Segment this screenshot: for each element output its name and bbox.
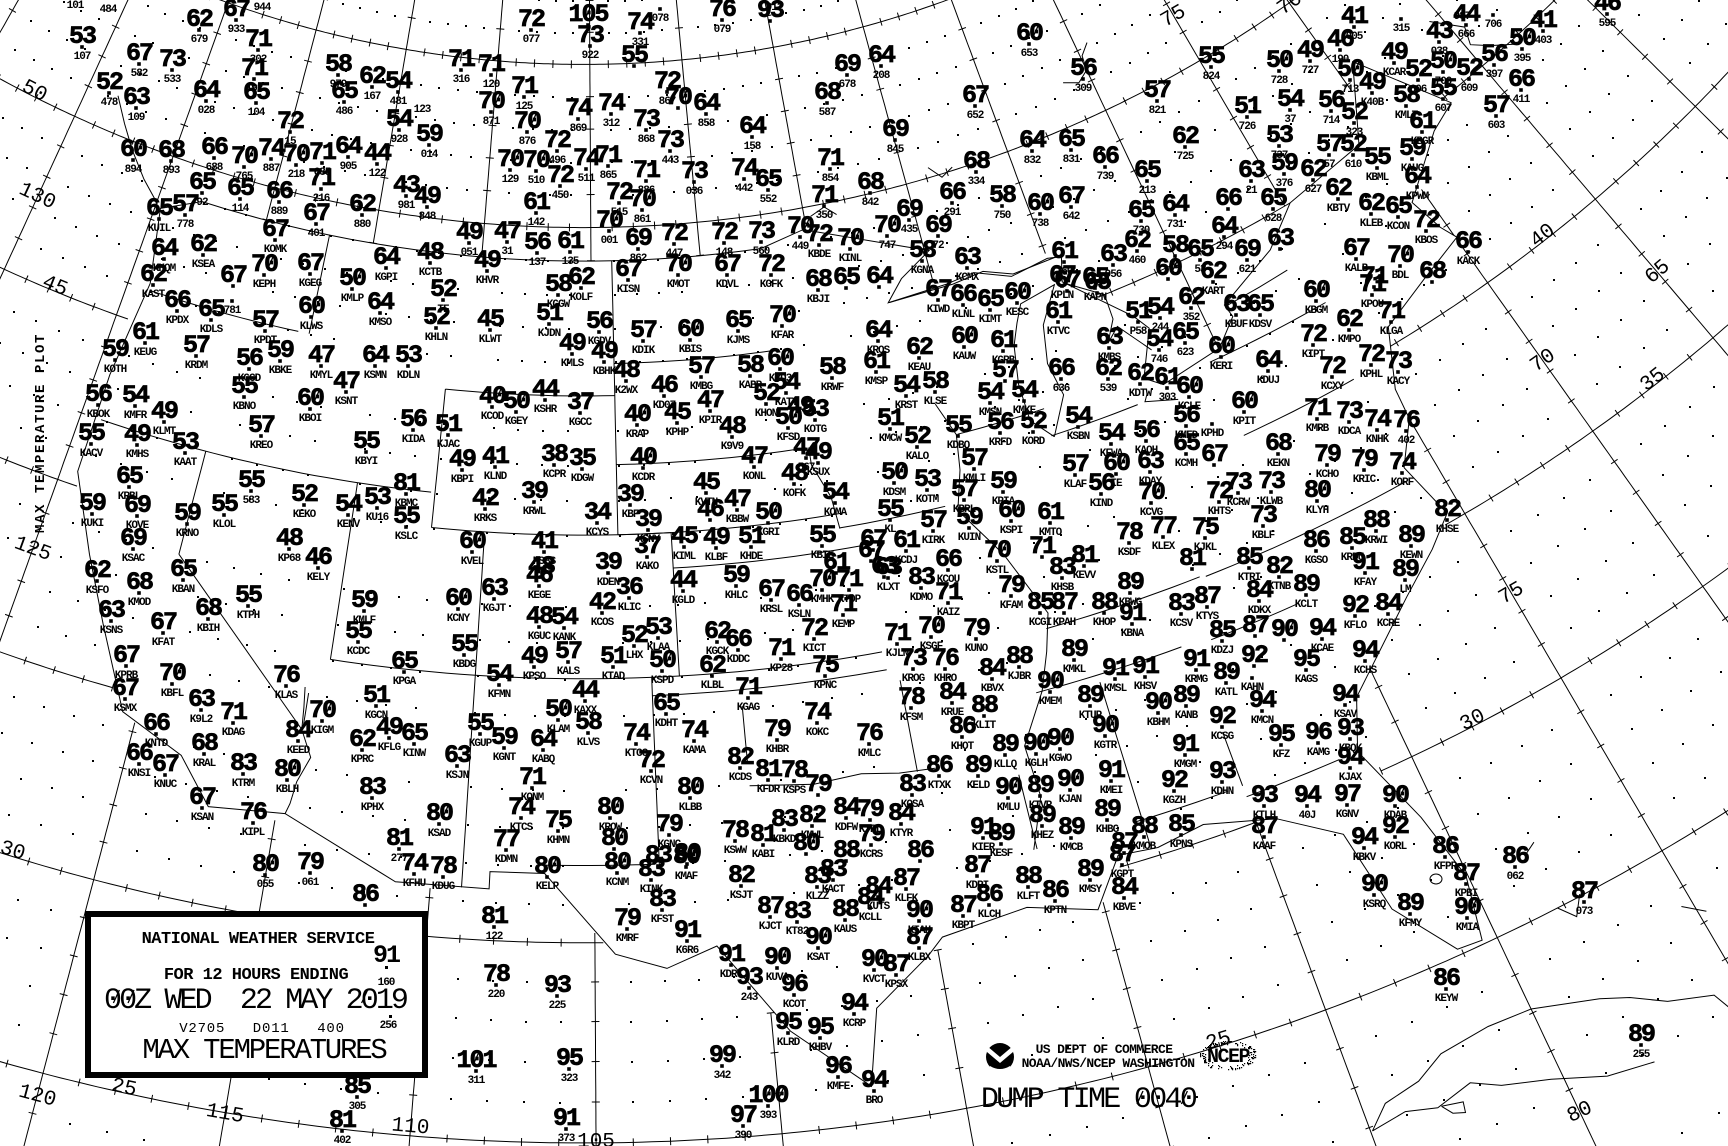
svg-text:70: 70: [251, 250, 278, 279]
svg-text:KMCB: KMCB: [1060, 842, 1084, 854]
svg-text:46: 46: [526, 561, 553, 590]
svg-text:KORF: KORF: [1391, 477, 1414, 489]
svg-text:79: 79: [764, 715, 791, 744]
svg-text:KSWW: KSWW: [724, 845, 748, 857]
svg-text:636: 636: [1053, 383, 1070, 395]
svg-text:411: 411: [1513, 94, 1531, 106]
svg-text:256: 256: [380, 1020, 397, 1032]
svg-text:KSHR: KSHR: [534, 404, 558, 416]
svg-text:842: 842: [862, 197, 879, 209]
svg-text:KPNC: KPNC: [814, 680, 838, 692]
svg-text:58: 58: [1393, 81, 1420, 110]
svg-text:BDL: BDL: [1392, 270, 1410, 282]
svg-text:67: 67: [303, 199, 330, 228]
svg-text:91: 91: [1102, 654, 1129, 683]
svg-text:61: 61: [523, 188, 550, 217]
svg-text:KBFL: KBFL: [161, 688, 185, 700]
svg-text:56: 56: [987, 408, 1014, 437]
svg-text:58: 58: [909, 236, 936, 265]
svg-text:89: 89: [1628, 1020, 1655, 1049]
svg-text:94: 94: [1351, 823, 1379, 852]
svg-text:KOLF: KOLF: [570, 292, 593, 304]
svg-text:KJBR: KJBR: [1008, 671, 1032, 683]
svg-text:94: 94: [861, 1066, 889, 1095]
svg-text:72: 72: [806, 220, 833, 249]
svg-text:928: 928: [391, 134, 409, 146]
svg-text:66: 66: [950, 280, 977, 309]
svg-text:105: 105: [577, 1131, 615, 1146]
svg-text:KBGM: KBGM: [1305, 305, 1329, 317]
svg-text:64: 64: [373, 243, 401, 272]
svg-text:79: 79: [297, 848, 324, 877]
svg-text:KBKV: KBKV: [1353, 852, 1377, 864]
svg-text:KLYH: KLYH: [1306, 505, 1329, 517]
svg-text:KOMA: KOMA: [824, 507, 848, 519]
svg-text:51: 51: [600, 642, 627, 671]
svg-text:47: 47: [308, 341, 335, 370]
svg-text:KEVV: KEVV: [1073, 570, 1097, 582]
svg-text:KHRO: KHRO: [934, 673, 958, 685]
svg-text:89: 89: [965, 751, 992, 780]
svg-text:KLXT: KLXT: [877, 582, 901, 594]
svg-text:71: 71: [519, 763, 546, 792]
svg-text:48: 48: [526, 602, 553, 631]
svg-text:KFST: KFST: [651, 914, 675, 926]
svg-text:KMOD: KMOD: [128, 597, 152, 609]
svg-text:89: 89: [992, 730, 1019, 759]
svg-text:KTLH: KTLH: [1253, 810, 1276, 822]
svg-text:53: 53: [802, 395, 829, 424]
svg-text:79: 79: [805, 770, 832, 799]
svg-text:67: 67: [152, 750, 179, 779]
svg-text:67: 67: [1343, 234, 1370, 263]
svg-text:54: 54: [486, 660, 514, 689]
svg-text:933: 933: [228, 24, 246, 36]
svg-text:KENV: KENV: [337, 519, 361, 531]
svg-text:62: 62: [1325, 174, 1352, 203]
svg-text:KCGI: KCGI: [1029, 617, 1052, 629]
svg-text:KGLH: KGLH: [1025, 758, 1048, 770]
svg-text:277: 277: [391, 853, 408, 865]
svg-text:65: 65: [391, 647, 418, 676]
svg-text:71: 71: [309, 138, 336, 167]
svg-text:KIPL: KIPL: [242, 827, 266, 839]
svg-text:52: 52: [1340, 130, 1367, 159]
svg-text:65: 65: [1260, 184, 1287, 213]
svg-text:92: 92: [1342, 591, 1369, 620]
svg-text:653: 653: [1021, 48, 1039, 60]
svg-text:50: 50: [1509, 24, 1536, 53]
svg-text:73: 73: [748, 217, 775, 246]
svg-text:587: 587: [819, 107, 836, 119]
svg-text:59: 59: [990, 467, 1017, 496]
svg-text:KORL: KORL: [1384, 841, 1408, 853]
svg-text:KLWT: KLWT: [479, 334, 503, 346]
svg-text:91: 91: [1098, 756, 1125, 785]
svg-text:55: 55: [345, 617, 372, 646]
svg-text:KTVC: KTVC: [1047, 326, 1071, 338]
svg-text:KMEM: KMEM: [1039, 696, 1063, 708]
svg-text:NATIONAL WEATHER SERVICE: NATIONAL WEATHER SERVICE: [142, 930, 375, 949]
svg-text:57: 57: [1062, 450, 1089, 479]
svg-text:607: 607: [1435, 103, 1452, 115]
svg-text:KTYS: KTYS: [1196, 611, 1220, 623]
svg-text:77: 77: [1150, 512, 1177, 541]
svg-text:KISN: KISN: [617, 284, 640, 296]
svg-text:014: 014: [421, 149, 439, 161]
svg-text:89: 89: [1029, 801, 1056, 830]
svg-text:KSRQ: KSRQ: [1363, 899, 1387, 911]
svg-text:KAAF: KAAF: [1253, 841, 1276, 853]
svg-text:67: 67: [1201, 440, 1228, 469]
svg-text:86: 86: [949, 712, 976, 741]
svg-text:80: 80: [604, 848, 631, 877]
svg-text:50: 50: [1266, 46, 1293, 75]
svg-text:746: 746: [1151, 354, 1168, 366]
svg-text:68: 68: [158, 136, 185, 165]
svg-text:60: 60: [445, 584, 472, 613]
svg-text:KGNT: KGNT: [493, 752, 517, 764]
svg-text:94: 94: [1294, 781, 1322, 810]
svg-text:48: 48: [417, 238, 444, 267]
svg-text:59: 59: [723, 561, 750, 590]
svg-text:028: 028: [198, 105, 216, 117]
svg-text:73: 73: [1336, 397, 1363, 426]
svg-text:96: 96: [825, 1052, 852, 1081]
svg-text:50: 50: [1430, 47, 1457, 76]
svg-text:42: 42: [589, 588, 616, 617]
svg-text:70: 70: [497, 145, 524, 174]
svg-text:KTRM: KTRM: [232, 778, 256, 790]
svg-text:82: 82: [1266, 552, 1293, 581]
svg-text:KCNM: KCNM: [606, 877, 630, 889]
svg-text:MAX TEMPERATURE PLOT: MAX TEMPERATURE PLOT: [33, 333, 49, 533]
svg-text:54: 54: [893, 371, 921, 400]
svg-text:78: 78: [781, 756, 808, 785]
svg-text:84: 84: [285, 716, 313, 745]
svg-text:373: 373: [558, 1133, 576, 1145]
svg-text:66: 66: [939, 178, 966, 207]
svg-text:315: 315: [1393, 23, 1411, 35]
svg-text:725: 725: [1177, 151, 1195, 163]
svg-text:KPSX: KPSX: [885, 979, 909, 991]
svg-text:220: 220: [488, 989, 505, 1001]
svg-text:72: 72: [758, 250, 785, 279]
svg-text:KPGA: KPGA: [393, 676, 417, 688]
svg-text:871: 871: [483, 116, 501, 128]
svg-text:61: 61: [1037, 498, 1064, 527]
svg-text:KBJI: KBJI: [807, 294, 830, 306]
svg-text:87: 87: [1453, 859, 1480, 888]
svg-text:87: 87: [1051, 588, 1078, 617]
svg-text:62: 62: [349, 190, 376, 219]
svg-text:49: 49: [376, 713, 403, 742]
svg-text:73: 73: [1250, 501, 1277, 530]
svg-text:51: 51: [1234, 92, 1261, 121]
svg-text:309: 309: [1075, 83, 1092, 95]
svg-text:63: 63: [444, 741, 471, 770]
svg-text:KANB: KANB: [1175, 710, 1199, 722]
svg-text:81: 81: [1071, 541, 1098, 570]
svg-text:KELD: KELD: [967, 780, 991, 792]
svg-text:747: 747: [879, 240, 896, 252]
svg-text:83: 83: [649, 885, 676, 914]
svg-text:71: 71: [768, 634, 795, 663]
svg-text:69: 69: [120, 524, 147, 553]
svg-text:82: 82: [728, 861, 755, 890]
svg-text:73: 73: [159, 45, 186, 74]
svg-text:63: 63: [871, 552, 898, 581]
svg-text:79: 79: [1351, 445, 1378, 474]
svg-text:89: 89: [1173, 681, 1200, 710]
svg-text:74: 74: [681, 716, 709, 745]
svg-text:60: 60: [951, 322, 978, 351]
svg-text:160: 160: [378, 977, 395, 989]
svg-text:72: 72: [801, 614, 828, 643]
svg-text:67: 67: [1058, 182, 1085, 211]
svg-text:66: 66: [725, 625, 752, 654]
svg-text:552: 552: [760, 194, 777, 206]
svg-text:87: 87: [1194, 582, 1221, 611]
svg-text:88: 88: [1006, 642, 1033, 671]
svg-text:91: 91: [1183, 645, 1210, 674]
svg-text:887: 887: [263, 163, 280, 175]
svg-text:101: 101: [67, 0, 85, 12]
svg-text:67: 67: [615, 255, 642, 284]
svg-text:57: 57: [630, 316, 657, 345]
svg-text:78: 78: [483, 960, 510, 989]
svg-text:59: 59: [79, 489, 106, 518]
svg-text:60: 60: [1155, 254, 1182, 283]
svg-text:90: 90: [1023, 729, 1050, 758]
svg-text:893: 893: [163, 165, 181, 177]
svg-text:68: 68: [126, 568, 153, 597]
svg-text:831: 831: [1063, 154, 1081, 166]
svg-text:KAGS: KAGS: [1295, 674, 1319, 686]
svg-text:76: 76: [856, 719, 883, 748]
svg-text:86: 86: [1433, 964, 1460, 993]
svg-text:KSPS: KSPS: [783, 785, 807, 797]
svg-text:KLIC: KLIC: [618, 602, 642, 614]
svg-text:54: 54: [1147, 293, 1175, 322]
svg-text:KFMN: KFMN: [488, 689, 511, 701]
svg-text:64: 64: [367, 288, 395, 317]
svg-text:87: 87: [893, 864, 920, 893]
svg-text:073: 073: [1576, 906, 1594, 918]
svg-text:90: 90: [764, 943, 791, 972]
svg-text:55: 55: [231, 372, 258, 401]
svg-text:83: 83: [784, 897, 811, 926]
svg-text:KBKD: KBKD: [773, 834, 797, 846]
svg-text:57: 57: [172, 190, 199, 219]
svg-text:62: 62: [190, 230, 217, 259]
svg-text:KDHN: KDHN: [1211, 786, 1234, 798]
svg-text:84: 84: [857, 883, 885, 912]
svg-text:KRIC: KRIC: [1353, 474, 1377, 486]
svg-text:533: 533: [164, 74, 182, 86]
svg-text:78: 78: [430, 852, 457, 881]
svg-text:53: 53: [914, 465, 941, 494]
svg-text:KGTR: KGTR: [1094, 740, 1118, 752]
svg-text:54: 54: [1146, 325, 1174, 354]
svg-text:81: 81: [481, 902, 508, 931]
svg-text:49: 49: [474, 246, 501, 275]
svg-text:62: 62: [906, 333, 933, 362]
svg-text:KORD: KORD: [1022, 436, 1046, 448]
svg-text:55: 55: [78, 419, 105, 448]
svg-text:KBOI: KBOI: [299, 413, 322, 425]
svg-text:KEMP: KEMP: [832, 619, 856, 631]
svg-text:KBAN: KBAN: [172, 584, 195, 596]
svg-text:59: 59: [416, 120, 443, 149]
svg-text:57: 57: [248, 411, 275, 440]
svg-text:KMSP: KMSP: [865, 376, 889, 388]
svg-text:KSAN: KSAN: [191, 812, 214, 824]
svg-text:93: 93: [1251, 781, 1278, 810]
svg-text:KESF: KESF: [990, 848, 1013, 860]
svg-text:50: 50: [503, 387, 530, 416]
svg-text:62: 62: [1178, 283, 1205, 312]
svg-text:64: 64: [865, 316, 893, 345]
svg-text:KVEL: KVEL: [461, 556, 485, 568]
svg-text:KNUC: KNUC: [154, 779, 178, 791]
svg-text:53: 53: [1266, 121, 1293, 150]
svg-text:83: 83: [1049, 553, 1076, 582]
svg-text:58: 58: [545, 270, 572, 299]
svg-text:051: 051: [461, 247, 479, 259]
svg-text:95: 95: [1293, 645, 1320, 674]
svg-text:79: 79: [1314, 440, 1341, 469]
svg-text:57: 57: [688, 352, 715, 381]
svg-text:70: 70: [1387, 241, 1414, 270]
svg-text:726: 726: [1239, 121, 1256, 133]
svg-text:KCVN: KCVN: [640, 775, 663, 787]
svg-text:678: 678: [839, 79, 857, 91]
svg-text:44: 44: [572, 676, 600, 705]
svg-text:86: 86: [926, 751, 953, 780]
svg-text:85: 85: [1027, 588, 1054, 617]
svg-text:KDFW: KDFW: [835, 822, 859, 834]
svg-text:727: 727: [1302, 65, 1319, 77]
svg-text:71: 71: [735, 673, 762, 702]
svg-text:91: 91: [1132, 652, 1159, 681]
svg-text:91: 91: [1352, 548, 1379, 577]
svg-text:442: 442: [736, 183, 753, 195]
svg-text:511: 511: [578, 173, 596, 185]
svg-text:FOR 12 HOURS ENDING: FOR 12 HOURS ENDING: [164, 966, 349, 985]
svg-text:905: 905: [340, 161, 358, 173]
svg-text:107: 107: [74, 51, 91, 63]
svg-text:60: 60: [297, 384, 324, 413]
svg-text:KBVX: KBVX: [981, 683, 1005, 695]
svg-text:KGAG: KGAG: [737, 702, 761, 714]
svg-text:65: 65: [243, 78, 270, 107]
svg-text:KMSL: KMSL: [1104, 683, 1128, 695]
svg-text:KLRD: KLRD: [777, 1037, 801, 1049]
svg-text:KPTN: KPTN: [1044, 905, 1067, 917]
svg-text:47: 47: [741, 442, 768, 471]
svg-text:KAST: KAST: [142, 289, 166, 301]
svg-text:47: 47: [494, 217, 521, 246]
svg-text:53: 53: [395, 341, 422, 370]
svg-text:KGNV: KGNV: [1336, 809, 1360, 821]
svg-text:60: 60: [1004, 278, 1031, 307]
svg-text:65: 65: [1058, 125, 1085, 154]
svg-text:79: 79: [656, 810, 683, 839]
svg-text:KDHT: KDHT: [655, 718, 679, 730]
svg-text:KJDN: KJDN: [538, 328, 561, 340]
svg-text:225: 225: [549, 1000, 567, 1012]
svg-text:71: 71: [935, 578, 962, 607]
svg-text:70: 70: [874, 211, 901, 240]
svg-text:KHEZ: KHEZ: [1031, 830, 1055, 842]
svg-text:71: 71: [245, 25, 272, 54]
svg-text:70: 70: [596, 206, 623, 235]
svg-text:KFAR: KFAR: [771, 330, 795, 342]
svg-text:70: 70: [665, 250, 692, 279]
svg-text:KCRS: KCRS: [860, 849, 884, 861]
svg-text:52: 52: [96, 68, 123, 97]
svg-text:68: 68: [805, 265, 832, 294]
svg-text:KPDX: KPDX: [166, 315, 190, 327]
svg-text:91: 91: [674, 916, 701, 945]
svg-text:72: 72: [1300, 320, 1327, 349]
svg-text:00Z WED 22 MAY 2019: 00Z WED 22 MAY 2019: [104, 984, 407, 1018]
svg-text:KBOS: KBOS: [1415, 235, 1439, 247]
svg-text:53: 53: [69, 22, 96, 51]
svg-text:987: 987: [1454, 11, 1471, 23]
svg-text:LM: LM: [1399, 584, 1412, 596]
svg-text:KEKO: KEKO: [293, 509, 317, 521]
svg-text:KEED: KEED: [287, 745, 311, 757]
svg-text:78: 78: [898, 683, 925, 712]
svg-text:70: 70: [629, 185, 656, 214]
svg-text:83: 83: [638, 855, 665, 884]
svg-text:KSBN: KSBN: [1067, 431, 1090, 443]
svg-text:KPRC: KPRC: [351, 754, 375, 766]
svg-text:KCHS: KCHS: [1354, 665, 1378, 677]
svg-text:46: 46: [1327, 25, 1354, 54]
svg-text:KTYR: KTYR: [890, 828, 914, 840]
svg-text:91: 91: [1172, 730, 1199, 759]
svg-text:KSMX: KSMX: [114, 703, 138, 715]
svg-text:79: 79: [998, 571, 1025, 600]
svg-text:55: 55: [877, 495, 904, 524]
svg-text:70: 70: [283, 140, 310, 169]
svg-text:79: 79: [963, 614, 990, 643]
svg-text:63: 63: [123, 83, 150, 112]
svg-text:69: 69: [124, 491, 151, 520]
svg-text:KAAT: KAAT: [174, 457, 198, 469]
svg-text:60: 60: [1027, 189, 1054, 218]
svg-text:848: 848: [419, 211, 437, 223]
svg-text:KDZJ: KDZJ: [1211, 645, 1234, 657]
svg-text:81: 81: [329, 1106, 356, 1135]
svg-text:450: 450: [552, 190, 569, 202]
svg-text:52: 52: [1456, 54, 1483, 83]
svg-text:KRNO: KRNO: [176, 528, 200, 540]
svg-text:58: 58: [737, 351, 764, 380]
svg-text:KBDE: KBDE: [808, 249, 832, 261]
svg-text:82: 82: [1434, 495, 1461, 524]
svg-text:86: 86: [1042, 876, 1069, 905]
svg-text:96: 96: [1305, 718, 1332, 747]
svg-text:94: 94: [1337, 743, 1365, 772]
svg-text:95: 95: [1268, 720, 1295, 749]
svg-text:70: 70: [665, 83, 692, 112]
svg-text:KIWD: KIWD: [927, 304, 951, 316]
svg-text:62: 62: [568, 263, 595, 292]
